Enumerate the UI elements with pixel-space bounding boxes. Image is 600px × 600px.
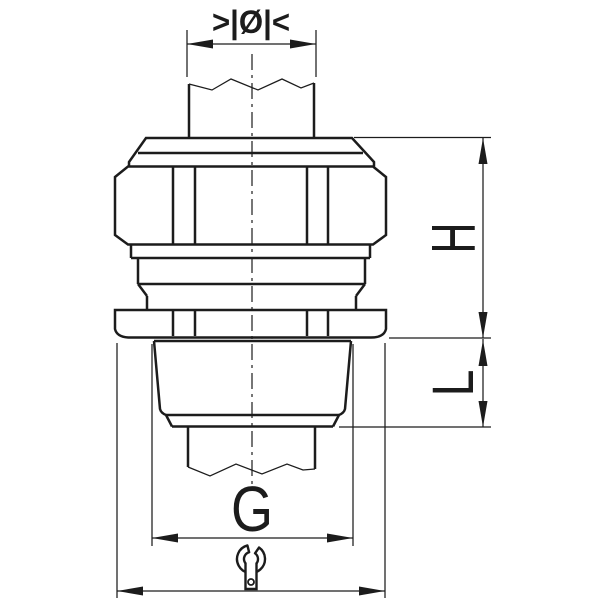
thread-size-dim-label: G [231, 473, 273, 545]
thread-right-side [339, 341, 351, 415]
arrowhead-down [479, 401, 488, 427]
flange-outline [115, 310, 386, 338]
arrowhead-down [479, 312, 488, 338]
thread-length-dim-label: L [421, 370, 486, 397]
arrowhead-left [117, 587, 143, 596]
drawing-canvas: >|Ø|< H L G [0, 0, 600, 600]
cable-diameter-symbol: >|Ø|< [212, 4, 290, 40]
l-dimension: L [339, 339, 491, 427]
arrowhead-right [327, 534, 353, 543]
upper-hex-nut [115, 167, 386, 245]
hex-flange [115, 310, 386, 338]
wrench-icon [235, 544, 267, 589]
thread-chamfer [333, 415, 339, 427]
arrowhead-up [479, 138, 488, 164]
arrowhead-left [187, 40, 213, 49]
ring-taper [356, 284, 365, 296]
wrench-hole [248, 579, 254, 585]
cable-top [189, 79, 314, 138]
arrowhead-left [152, 534, 178, 543]
thread-chamfer [166, 415, 172, 427]
hex-nut-outline [115, 167, 386, 245]
ring-taper [138, 284, 147, 296]
arrowhead-right [290, 40, 316, 49]
thread-left-side [154, 341, 166, 415]
body-rings [131, 245, 370, 310]
height-dim-label: H [420, 223, 489, 254]
arrowhead-up [479, 340, 488, 366]
arrowhead-right [359, 587, 385, 596]
cable-gland-technical-drawing: >|Ø|< H L G [0, 0, 600, 600]
